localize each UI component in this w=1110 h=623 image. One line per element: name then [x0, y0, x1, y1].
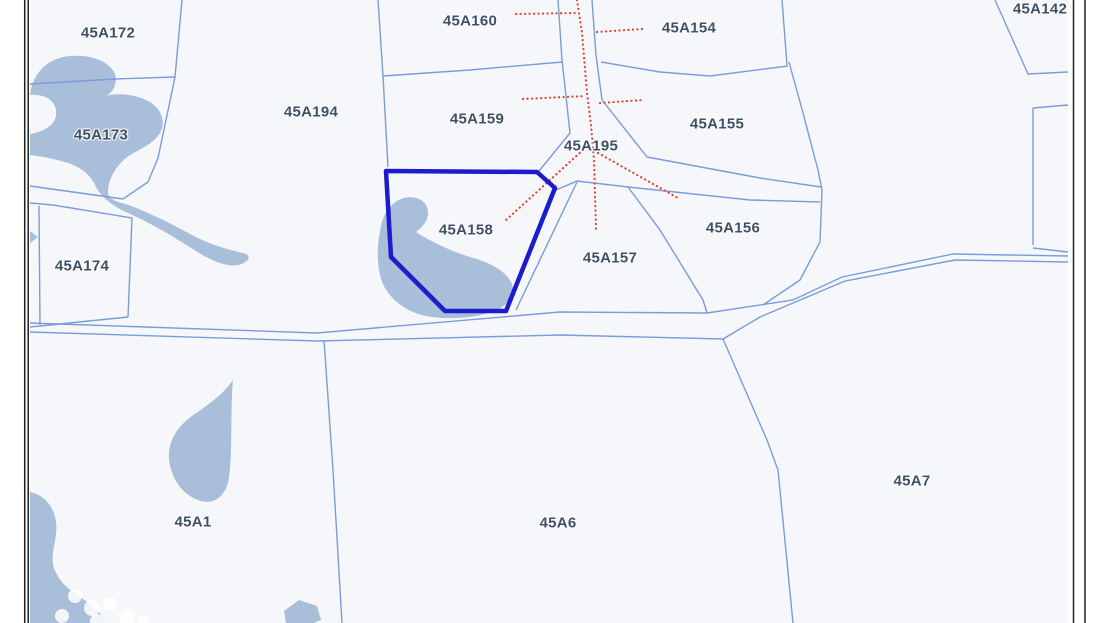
map-graphics [0, 0, 1110, 623]
map-canvas[interactable]: 45A17245A17345A17445A19445A16045A15945A1… [0, 0, 1110, 623]
map-sheet-background [30, 0, 1068, 623]
